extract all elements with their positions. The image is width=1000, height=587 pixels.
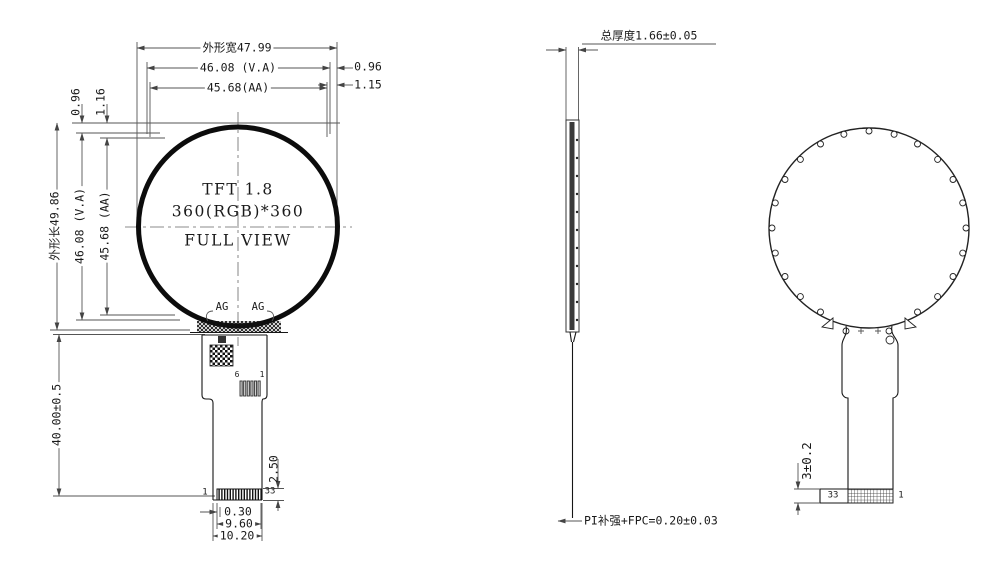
dim-aa-height-label: 45.68 (AA) bbox=[99, 189, 111, 262]
dim-contact-height-label: 2.50 bbox=[268, 455, 280, 483]
connector-contacts-back bbox=[848, 489, 893, 503]
bonding-hatch bbox=[197, 321, 281, 332]
dim-edge-va-right-label: 0.96 bbox=[354, 61, 382, 73]
dim-aa-width-label: 45.68(AA) bbox=[205, 82, 271, 94]
back-pin1-label: 1 bbox=[897, 492, 904, 501]
bond-pin-left-label: 6 bbox=[235, 371, 240, 379]
connector-pin33-label: 33 bbox=[264, 488, 277, 497]
bond-pin-right-label: 1 bbox=[260, 371, 265, 379]
side-view bbox=[546, 44, 716, 521]
dim-va-height-label: 46.08 (V.A) bbox=[74, 186, 86, 266]
back-pin33-label: 33 bbox=[827, 492, 840, 501]
dim-edge-va-top-label: 0.96 bbox=[70, 88, 82, 116]
engineering-drawing-canvas: 外形宽47.99 46.08 (V.A) 45.68(AA) 0.96 1.15… bbox=[0, 0, 1000, 587]
fpc-stackup-note: PI补强+FPC=0.20±0.03 bbox=[584, 515, 718, 527]
connector-contacts-front bbox=[217, 489, 261, 500]
bond-pin-group bbox=[240, 381, 260, 396]
fpc-tail-front bbox=[202, 335, 267, 500]
dim-edge-aa-top-label: 1.16 bbox=[95, 88, 107, 116]
dim-outer-width-label: 外形宽47.99 bbox=[200, 42, 273, 54]
dim-stiffener-label: 3±0.2 bbox=[801, 442, 814, 480]
panel-title-line1: TFT 1.8 bbox=[200, 182, 276, 198]
ag-label-left: AG bbox=[216, 302, 229, 313]
panel-title-line2: 360(RGB)*360 bbox=[170, 204, 306, 220]
stiffener-block bbox=[210, 345, 233, 366]
fpc-tail-back bbox=[820, 326, 898, 503]
panel-title-line3: FULL VIEW bbox=[182, 233, 293, 249]
dim-tail-length-label: 40.00±0.5 bbox=[51, 382, 63, 448]
thickness-note: 总厚度1.66±0.05 bbox=[601, 30, 698, 42]
connector-pin1-label: 1 bbox=[201, 489, 208, 498]
dim-tail-width-label: 10.20 bbox=[218, 530, 257, 542]
ag-label-right: AG bbox=[252, 302, 265, 313]
drawing-linework bbox=[0, 0, 1000, 587]
dim-va-width-label: 46.08 (V.A) bbox=[198, 62, 278, 74]
dim-outer-height-label: 外形长49.86 bbox=[49, 189, 61, 262]
dim-edge-aa-right-label: 1.15 bbox=[354, 79, 382, 91]
front-view bbox=[50, 42, 353, 541]
